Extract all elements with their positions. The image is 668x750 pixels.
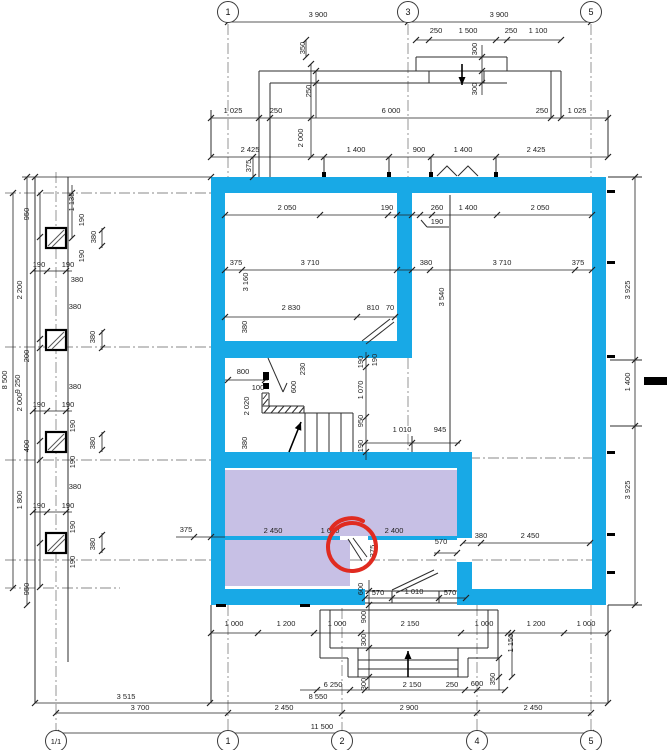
dimension-label: 2 450 xyxy=(264,526,283,535)
dimension-label: 200 xyxy=(22,350,31,363)
wall-tick xyxy=(607,190,615,193)
dimension-label: 1 000 xyxy=(225,619,244,628)
dimension-label: 300 xyxy=(470,83,479,96)
wall-segment xyxy=(457,562,472,605)
wall-segment xyxy=(592,177,606,605)
wall-tick xyxy=(300,604,310,607)
dimension-label: 2 450 xyxy=(524,703,543,712)
dimension-label: 380 xyxy=(71,275,84,284)
dimension-label: 3 900 xyxy=(490,10,509,19)
dimension-label: 300 xyxy=(359,634,368,647)
wall-tick xyxy=(322,172,326,177)
dimension-label: 600 xyxy=(471,679,484,688)
dimension-label: 190 xyxy=(62,501,75,510)
dimension-label: 2 450 xyxy=(275,703,294,712)
dimension-label: 2 000 xyxy=(15,393,24,412)
dimension-label: 600 xyxy=(289,381,298,394)
dimension-label: 190 xyxy=(62,260,75,269)
wall-tick xyxy=(429,172,433,177)
plan-line xyxy=(353,538,367,557)
dimension-label: 6 000 xyxy=(382,106,401,115)
dimension-label: 3 160 xyxy=(241,273,250,292)
wall-tick xyxy=(607,355,615,358)
wall-segment xyxy=(457,452,472,538)
dimension-label: 375 xyxy=(244,160,253,173)
grid-axis-label: 1 xyxy=(225,7,230,17)
plan-line xyxy=(292,406,298,413)
grid-axis-label: 1 xyxy=(225,736,230,746)
grid-axis-label: 5 xyxy=(588,736,593,746)
dimension-label: 3 700 xyxy=(131,703,150,712)
dimension-label: 70 xyxy=(386,303,394,312)
dimension-label: 380 xyxy=(240,437,249,450)
dimension-label: 3 925 xyxy=(623,281,632,300)
dimension-label: 300 xyxy=(470,43,479,56)
dimension-label: 1 000 xyxy=(475,619,494,628)
dimension-label: 1 200 xyxy=(277,619,296,628)
wall-segment xyxy=(211,177,606,193)
grid-axis-label: 4 xyxy=(474,736,479,746)
dimension-label: 350 xyxy=(488,673,497,686)
grid-axis-label: 2 xyxy=(339,736,344,746)
plan-line xyxy=(348,539,362,561)
dimension-label: 380 xyxy=(69,302,82,311)
dimension-label: 800 xyxy=(237,367,250,376)
plan-line xyxy=(299,407,304,413)
dimension-label: 8 550 xyxy=(309,692,328,701)
dimension-label: 2 425 xyxy=(241,145,260,154)
dimension-label: 11 500 xyxy=(311,722,333,731)
dimension-label: 190 xyxy=(68,521,77,534)
dimension-label: 810 xyxy=(367,303,380,312)
plan-line xyxy=(264,406,270,413)
plan-line xyxy=(278,406,284,413)
wall-tick xyxy=(607,451,615,454)
dimension-label: 190 xyxy=(370,354,379,367)
dimension-label: 380 xyxy=(89,231,98,244)
dimension-label: 1 400 xyxy=(459,203,478,212)
dimension-label: 380 xyxy=(88,437,97,450)
dimension-label: 380 xyxy=(69,382,82,391)
dimension-label: 350 xyxy=(298,42,307,55)
dimension-label: 2 450 xyxy=(521,531,540,540)
grid-axis-label: 1/1 xyxy=(51,737,61,746)
dimension-label: 1 000 xyxy=(577,619,596,628)
dimension-label: 900 xyxy=(359,611,368,624)
plan-line xyxy=(421,220,427,227)
window-opening-symbol xyxy=(458,166,478,176)
dimension-label: 1 010 xyxy=(393,425,412,434)
dimension-label: 1 400 xyxy=(347,145,366,154)
direction-arrow-head xyxy=(405,651,412,659)
wall-segment xyxy=(457,589,606,605)
plan-line xyxy=(263,399,268,405)
wall-segment xyxy=(211,177,225,605)
grid-axis-label: 5 xyxy=(588,7,593,17)
grid-bubbles-layer: 1351/11245 xyxy=(46,2,602,750)
dimension-label: 2 830 xyxy=(282,303,301,312)
dimension-lines-layer xyxy=(10,19,638,736)
dimension-label: 250 xyxy=(505,26,518,35)
dimension-label: 2 150 xyxy=(403,680,422,689)
wall-tick xyxy=(644,377,667,385)
wall-tick xyxy=(494,172,498,177)
dimension-label: 1 000 xyxy=(328,619,347,628)
plan-drawing: 3 9003 9002501 5002501 1003503002503001 … xyxy=(0,0,668,750)
wall-tick xyxy=(607,533,615,536)
dimension-label: 380 xyxy=(240,321,249,334)
dimension-label: 2 020 xyxy=(242,397,251,416)
dimension-label: 570 xyxy=(372,588,385,597)
dimension-label: 2 150 xyxy=(401,619,420,628)
dimension-label: 950 xyxy=(22,583,31,596)
dimension-label: 570 xyxy=(444,588,457,597)
dimension-label: 6 250 xyxy=(324,680,343,689)
dimension-label: 2 000 xyxy=(296,129,305,148)
linework-layer xyxy=(35,57,642,703)
dimension-label: 250 xyxy=(270,106,283,115)
dimension-label: 1 400 xyxy=(454,145,473,154)
dimension-label: 3 925 xyxy=(623,481,632,500)
dimension-label: 2 400 xyxy=(385,526,404,535)
dimension-label: 1 070 xyxy=(356,381,365,400)
dimension-label: 190 xyxy=(68,420,77,433)
dimension-label: 190 xyxy=(33,400,46,409)
dimension-label: 250 xyxy=(304,85,313,98)
dimension-label: 2 200 xyxy=(15,281,24,300)
dimension-label: 1 025 xyxy=(224,106,243,115)
dimension-label: 190 xyxy=(356,440,365,453)
dimension-label: 375 xyxy=(180,525,193,534)
plan-line xyxy=(285,406,291,413)
floor-plan: 3 9003 9002501 5002501 1003503002503001 … xyxy=(0,0,668,750)
dimension-label: 375 xyxy=(230,258,243,267)
dimension-label: 250 xyxy=(446,680,459,689)
dimension-label: 2 050 xyxy=(531,203,550,212)
dimension-label: 380 xyxy=(88,331,97,344)
dimension-label: 190 xyxy=(68,556,77,569)
dimension-label: 1 200 xyxy=(527,619,546,628)
dimension-label: 1 025 xyxy=(568,106,587,115)
plan-line xyxy=(263,394,267,399)
dimension-label: 190 xyxy=(77,250,86,263)
dimension-label: 190 xyxy=(33,501,46,510)
dimension-label: 1 500 xyxy=(459,26,478,35)
dimension-label: 2 900 xyxy=(400,703,419,712)
plan-line xyxy=(283,383,287,392)
dimension-label: 250 xyxy=(430,26,443,35)
dimension-label: 900 xyxy=(413,145,426,154)
wall-segment xyxy=(211,589,365,605)
dimension-label: 8 500 xyxy=(0,371,9,390)
dimension-label: 260 xyxy=(431,203,444,212)
direction-arrow-head xyxy=(295,422,301,431)
direction-arrow-head xyxy=(459,77,466,85)
dimension-label: 300 xyxy=(359,678,368,691)
dimension-label: 375 xyxy=(572,258,585,267)
dimension-label: 3 710 xyxy=(301,258,320,267)
dimension-label: 3 515 xyxy=(117,692,136,701)
dimension-label: 2 425 xyxy=(527,145,546,154)
dimension-label: 380 xyxy=(475,531,488,540)
dimension-label: 600 xyxy=(356,583,365,596)
wall-segment xyxy=(211,452,472,468)
dimension-label: 9 250 xyxy=(13,375,22,394)
dimension-label: 3 900 xyxy=(309,10,328,19)
grid-axis-label: 3 xyxy=(405,7,410,17)
plan-line xyxy=(362,319,390,341)
dimension-label: 380 xyxy=(88,538,97,551)
plan-line xyxy=(271,406,277,413)
wall-segment xyxy=(211,341,412,358)
dimension-label: 3 540 xyxy=(437,288,446,307)
window-opening-symbol xyxy=(437,166,457,176)
dimension-label: 190 xyxy=(33,260,46,269)
dimension-label: 190 xyxy=(62,400,75,409)
dimension-label: 1 010 xyxy=(405,587,424,596)
dimension-label: 380 xyxy=(69,482,82,491)
dimension-label: 1 100 xyxy=(529,26,548,35)
wall-tick xyxy=(387,172,391,177)
dimension-label: 1 150 xyxy=(506,634,515,653)
dimension-label: 190 xyxy=(356,356,365,369)
dimension-label: 3 710 xyxy=(493,258,512,267)
dimension-label: 190 xyxy=(77,214,86,227)
dimension-label: 400 xyxy=(22,440,31,453)
wall-tick xyxy=(607,261,615,264)
wall-segment xyxy=(225,536,340,540)
dimension-label: 950 xyxy=(22,208,31,221)
highlighted-room xyxy=(225,540,350,586)
dimension-label: 950 xyxy=(356,415,365,428)
dimension-label: 1 135 xyxy=(67,193,76,212)
wall-tick xyxy=(607,571,615,574)
dimension-label: 230 xyxy=(298,363,307,376)
dimension-label: 380 xyxy=(420,258,433,267)
wall-tick xyxy=(263,372,269,380)
plan-line xyxy=(366,322,394,344)
dimension-label: 190 xyxy=(68,456,77,469)
dimension-label: 190 xyxy=(431,217,444,226)
wall-tick xyxy=(216,604,226,607)
dimension-label: 250 xyxy=(536,106,549,115)
dimension-label: 190 xyxy=(381,203,394,212)
dimension-label: 945 xyxy=(434,425,447,434)
dimension-label: 1 400 xyxy=(623,373,632,392)
dimension-label: 100 xyxy=(252,383,265,392)
dimension-label: 570 xyxy=(435,537,448,546)
dimension-label: 2 050 xyxy=(278,203,297,212)
plan-line xyxy=(268,358,283,392)
dimension-label: 1 800 xyxy=(15,491,24,510)
